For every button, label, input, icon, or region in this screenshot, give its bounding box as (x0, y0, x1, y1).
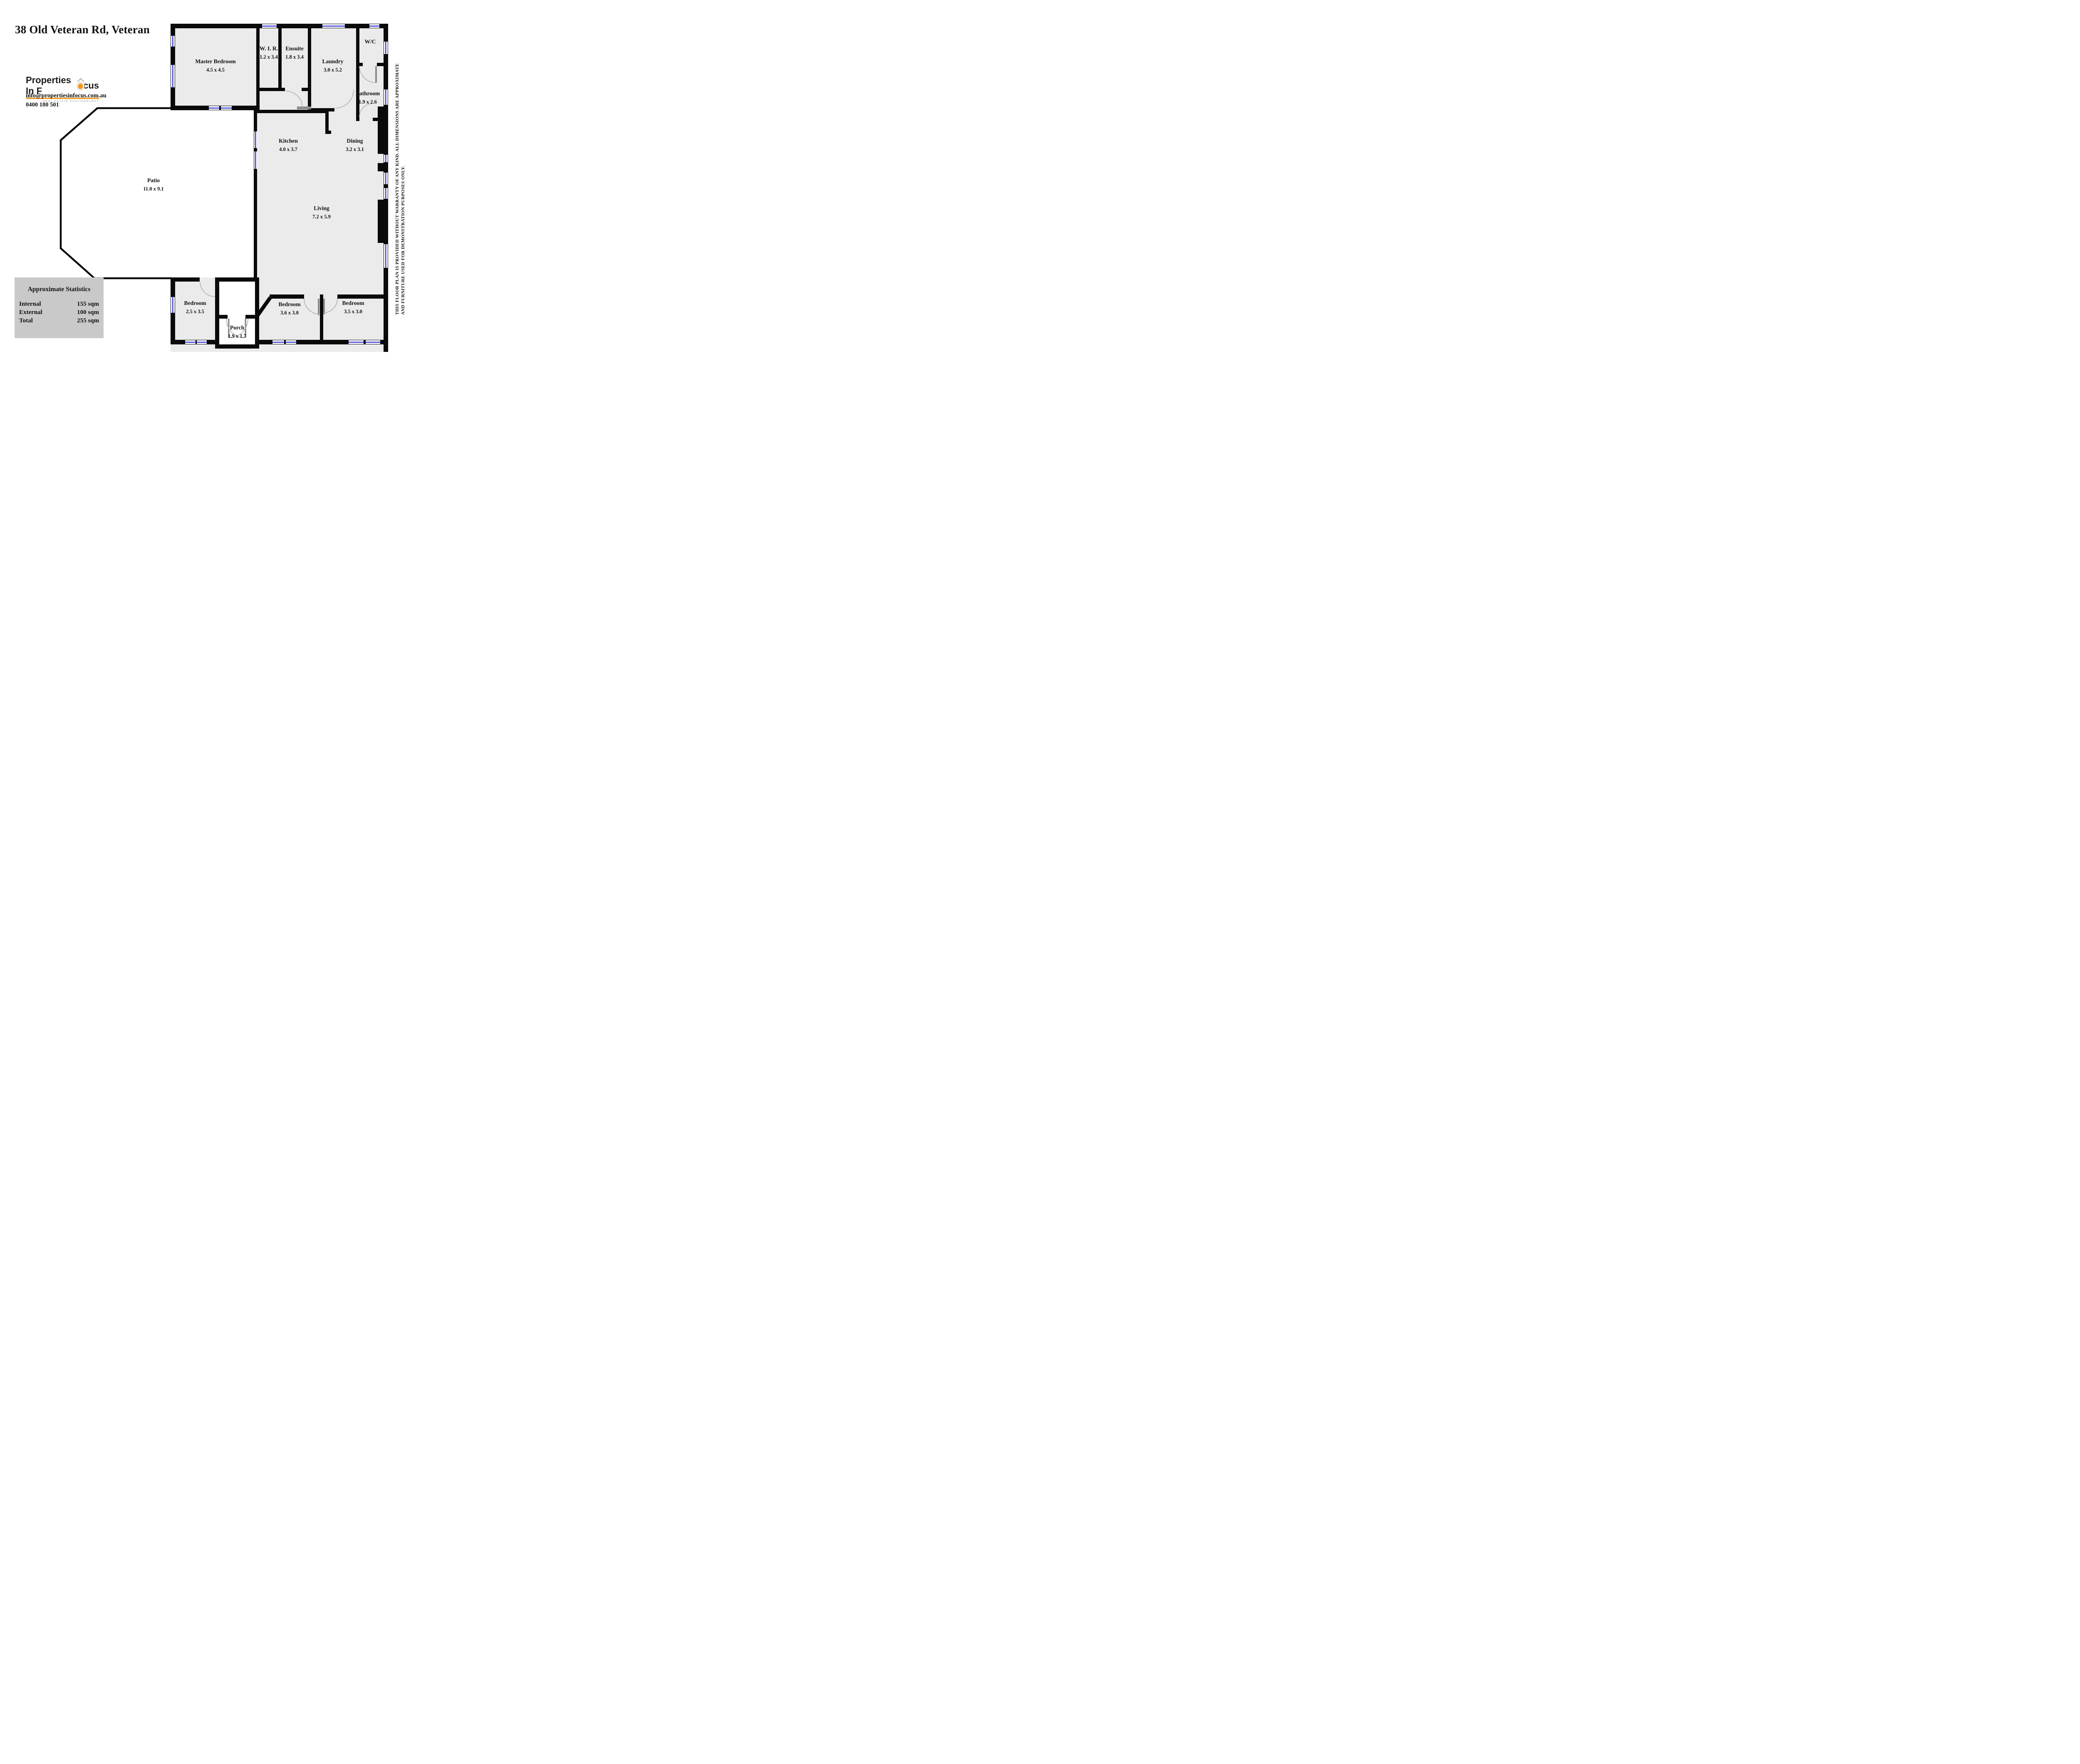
disclaimer-line-2: AND FURNITURE USED FOR DEMONSTRATION PUR… (401, 63, 406, 315)
room-label-bedroom-2: Bedroom 3.6 x 3.0 (279, 300, 301, 317)
room-label-patio: Patio 11.0 x 9.1 (143, 176, 163, 193)
contact-phone: 0400 180 501 (26, 101, 59, 109)
room-label-ensuite: Ensuite 1.8 x 3.4 (285, 44, 304, 62)
room-label-bathroom: Bathroom 1.9 x 2.6 (356, 89, 380, 106)
stats-title: Approximate Statistics (15, 277, 104, 293)
page-title: 38 Old Veteran Rd, Veteran (15, 23, 150, 36)
page: { "title": "38 Old Veteran Rd, Veteran",… (0, 0, 416, 353)
room-label-wc: W/C (365, 37, 376, 46)
stats-rows: Internal 155 sqm External 100 sqm Total … (15, 300, 104, 325)
stats-row-external: External 100 sqm (19, 308, 99, 317)
room-label-wir: W. I. R. 1.2 x 3.4 (260, 44, 278, 62)
room-label-bedroom-3: Bedroom 3.5 x 3.0 (342, 299, 364, 316)
room-label-master-bedroom: Master Bedroom 4.5 x 4.5 (195, 57, 235, 74)
disclaimer-line-1: THIS FLOOR PLAN IS PROVIDED WITHOUT WARR… (395, 63, 401, 315)
disclaimer: THIS FLOOR PLAN IS PROVIDED WITHOUT WARR… (395, 63, 406, 315)
logo-text-post: cus (83, 80, 99, 91)
contact-email: info@propertiesinfocus.com.au (26, 92, 106, 99)
room-label-porch: Porch 1.9 x 1.7 (228, 323, 246, 341)
stats-row-total: Total 255 sqm (19, 317, 99, 325)
room-label-dining: Dining 3.2 x 3.1 (346, 136, 364, 154)
stats-row-internal: Internal 155 sqm (19, 300, 99, 308)
camera-lens-house-icon (77, 82, 83, 90)
room-label-kitchen: Kitchen 4.0 x 3.7 (279, 136, 298, 154)
room-label-bedroom-1: Bedroom 2.5 x 3.5 (184, 299, 206, 316)
room-label-laundry: Laundry 3.0 x 5.2 (322, 57, 343, 74)
room-label-living: Living 7.2 x 5.9 (312, 204, 331, 221)
stats-box: Approximate Statistics Internal 155 sqm … (15, 277, 104, 338)
